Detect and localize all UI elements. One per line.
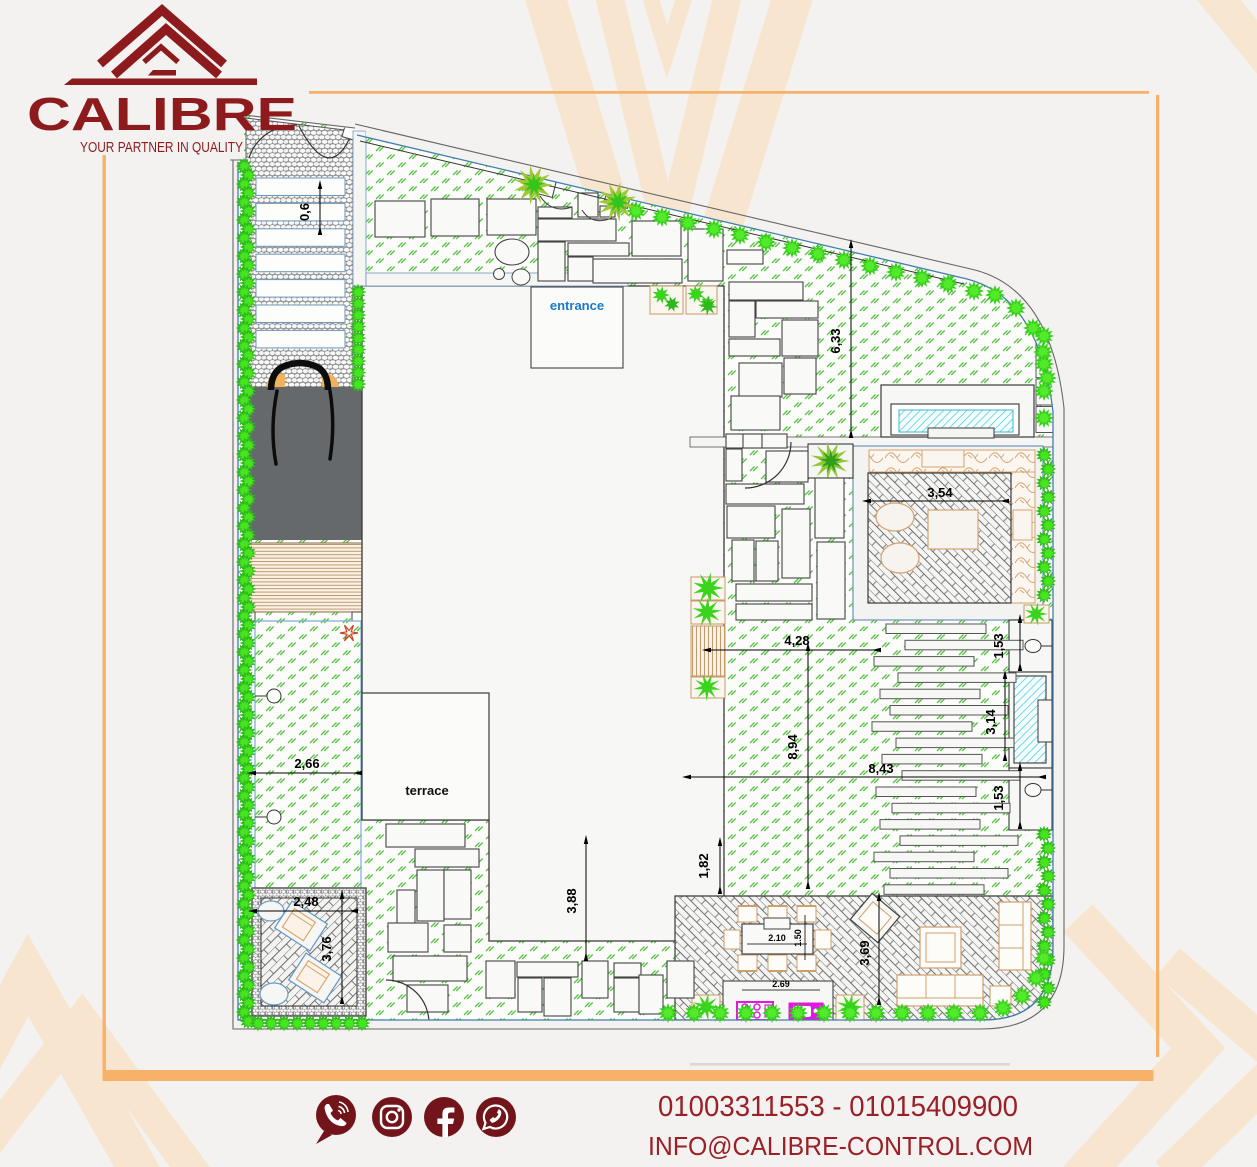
svg-text:1,53: 1,53	[991, 785, 1006, 810]
svg-text:2,48: 2,48	[293, 894, 318, 909]
svg-text:1.50: 1.50	[793, 929, 803, 947]
svg-text:0,6: 0,6	[297, 203, 312, 221]
svg-text:2.69: 2.69	[772, 979, 790, 989]
svg-text:2,66: 2,66	[294, 756, 319, 771]
svg-text:1,82: 1,82	[696, 853, 711, 878]
svg-text:3,69: 3,69	[857, 940, 872, 965]
svg-text:8,43: 8,43	[868, 761, 893, 776]
svg-text:3,14: 3,14	[983, 709, 998, 735]
svg-text:terrace: terrace	[405, 783, 448, 798]
svg-text:3,76: 3,76	[319, 936, 334, 961]
svg-text:8,94: 8,94	[785, 734, 800, 760]
svg-text:1,53: 1,53	[991, 633, 1006, 658]
svg-text:4,28: 4,28	[784, 633, 809, 648]
svg-text:01003311553 - 01015409900: 01003311553 - 01015409900	[658, 1091, 1018, 1123]
svg-text:YOUR PARTNER IN QUALITY: YOUR PARTNER IN QUALITY	[80, 139, 243, 156]
svg-text:CALIBRE: CALIBRE	[27, 88, 297, 140]
svg-text:3,88: 3,88	[564, 888, 579, 913]
svg-text:entrance: entrance	[550, 298, 604, 313]
svg-text:INFO@CALIBRE-CONTROL.COM: INFO@CALIBRE-CONTROL.COM	[648, 1131, 1033, 1161]
svg-text:2.10: 2.10	[768, 933, 786, 943]
svg-text:3,54: 3,54	[927, 485, 953, 500]
svg-text:6,33: 6,33	[828, 328, 843, 353]
